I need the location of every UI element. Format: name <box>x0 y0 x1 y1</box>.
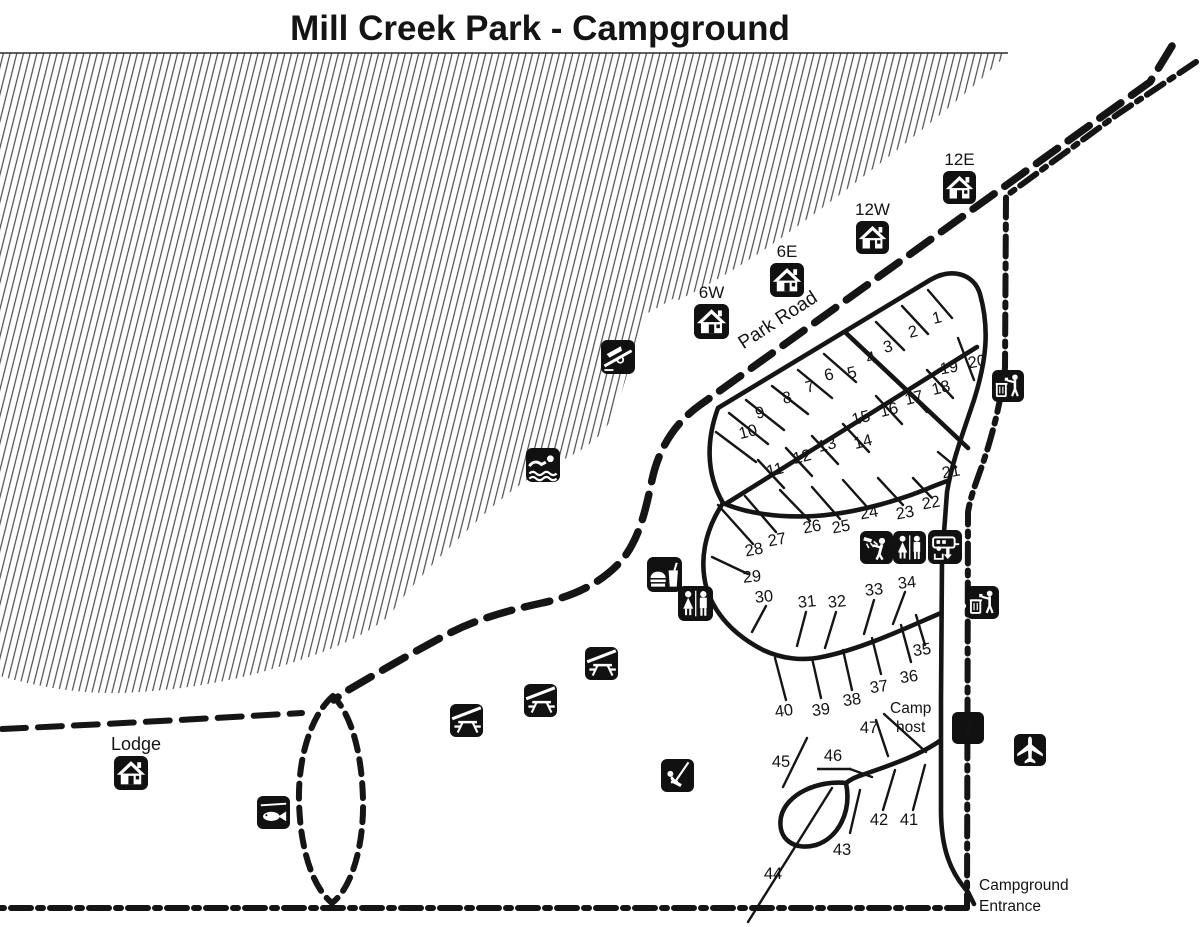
cabin-12W-label: 12W <box>855 200 890 219</box>
cabin-6W-icon <box>694 304 729 339</box>
trash-icon <box>992 370 1024 402</box>
site-number-19: 19 <box>938 358 959 379</box>
campground-entrance-label-line2: Entrance <box>979 898 1041 915</box>
camp-host-label-line2: host <box>896 719 926 736</box>
lodge-label: Lodge <box>111 734 161 754</box>
cabin-6E-label: 6E <box>777 242 798 261</box>
site-number-9: 9 <box>753 403 766 423</box>
cabin-6E-icon <box>770 263 804 297</box>
site-number-25: 25 <box>830 517 851 538</box>
map-title: Mill Creek Park - Campground <box>290 9 790 48</box>
lodge-icon <box>114 756 148 790</box>
park-boundary <box>967 62 1196 908</box>
camp-host-label-line1: Camp <box>890 700 931 717</box>
picnic-shelter-icon <box>585 647 618 680</box>
campground-map-page: 1234567891011121314151617181920212223242… <box>0 0 1200 927</box>
lake-hatched-area <box>0 53 1008 693</box>
site-number-26: 26 <box>801 517 822 538</box>
lodge-access-road <box>2 713 302 729</box>
site-number-29: 29 <box>742 567 762 587</box>
boat-ramp-icon <box>601 340 635 374</box>
site-number-35: 35 <box>912 640 933 660</box>
trash-icon <box>966 586 999 619</box>
pond-loop-road <box>299 696 363 903</box>
site-number-10: 10 <box>737 421 759 443</box>
site-number-11: 11 <box>765 459 786 481</box>
concessions-icon <box>647 557 682 592</box>
campground-map: 1234567891011121314151617181920212223242… <box>0 0 1200 927</box>
campsite-numbers-layer: 1234567891011121314151617181920212223242… <box>737 308 988 883</box>
cabin-12W-icon <box>856 221 889 254</box>
site-number-22: 22 <box>920 493 941 514</box>
site-number-46: 46 <box>824 747 842 765</box>
information-icon: i <box>952 712 984 744</box>
site-number-24: 24 <box>858 503 879 524</box>
picnic-shelter-icon <box>524 684 557 717</box>
site-number-30: 30 <box>754 587 774 607</box>
site-number-38: 38 <box>842 690 863 710</box>
campground-entrance-label-line1: Campground <box>979 877 1069 894</box>
site-number-6: 6 <box>822 365 835 385</box>
site-number-40: 40 <box>774 701 795 721</box>
cabin-6W-label: 6W <box>699 283 725 302</box>
site-number-8: 8 <box>780 388 793 408</box>
shower-icon <box>860 531 893 564</box>
site-number-1: 1 <box>930 308 943 328</box>
restroom-icon <box>678 586 713 621</box>
site-number-34: 34 <box>897 573 917 593</box>
site-number-20: 20 <box>966 352 987 373</box>
fishing-icon <box>257 796 290 829</box>
site-number-43: 43 <box>833 841 851 859</box>
airport-icon <box>1014 734 1046 766</box>
site-number-7: 7 <box>803 377 816 397</box>
site-number-32: 32 <box>827 592 847 612</box>
rv-dump-station-icon <box>928 530 962 564</box>
site-number-41: 41 <box>900 811 918 829</box>
site-number-27: 27 <box>766 530 787 551</box>
site-number-5: 5 <box>845 363 858 383</box>
site-number-18: 18 <box>930 377 952 399</box>
site-number-14: 14 <box>852 431 874 453</box>
site-number-47: 47 <box>860 719 878 737</box>
site-number-45: 45 <box>772 753 790 771</box>
site-number-42: 42 <box>870 811 888 829</box>
restroom-icon <box>893 531 926 564</box>
cabin-12E-icon <box>943 171 976 204</box>
site-number-33: 33 <box>864 580 884 600</box>
picnic-shelter-icon <box>450 704 483 737</box>
swimming-icon <box>526 448 560 482</box>
site-number-28: 28 <box>743 540 764 561</box>
site-number-4: 4 <box>864 348 877 368</box>
svg-text:i: i <box>965 718 971 742</box>
cabin-12E-label: 12E <box>944 150 974 169</box>
site-number-15: 15 <box>850 407 872 429</box>
playground-icon <box>661 759 694 792</box>
site-number-31: 31 <box>797 592 817 612</box>
site-number-21: 21 <box>940 462 961 483</box>
site-number-23: 23 <box>894 503 915 524</box>
site-number-37: 37 <box>869 677 890 697</box>
site-number-39: 39 <box>811 700 832 720</box>
site-number-2: 2 <box>906 322 919 342</box>
site-number-36: 36 <box>899 667 920 687</box>
site-number-44: 44 <box>764 865 782 883</box>
park-road-label: Park Road <box>735 287 822 354</box>
